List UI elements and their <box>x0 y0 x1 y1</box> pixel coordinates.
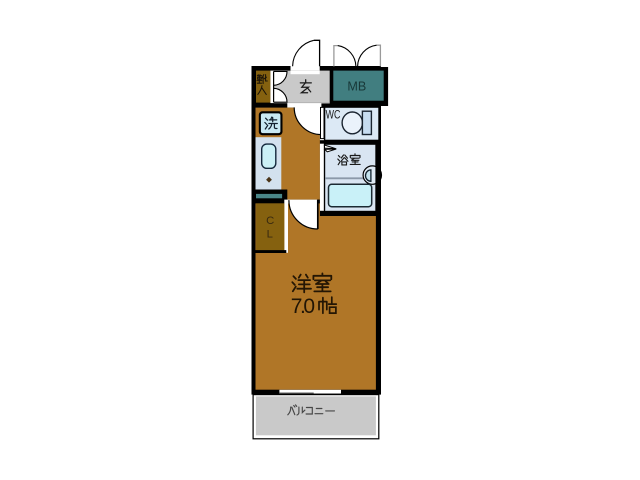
svg-text:7.0: 7.0 <box>291 295 315 318</box>
svg-text:MB: MB <box>347 79 366 93</box>
svg-text:C: C <box>266 215 274 227</box>
svg-text:WC: WC <box>326 107 341 121</box>
svg-text:L: L <box>267 229 273 241</box>
